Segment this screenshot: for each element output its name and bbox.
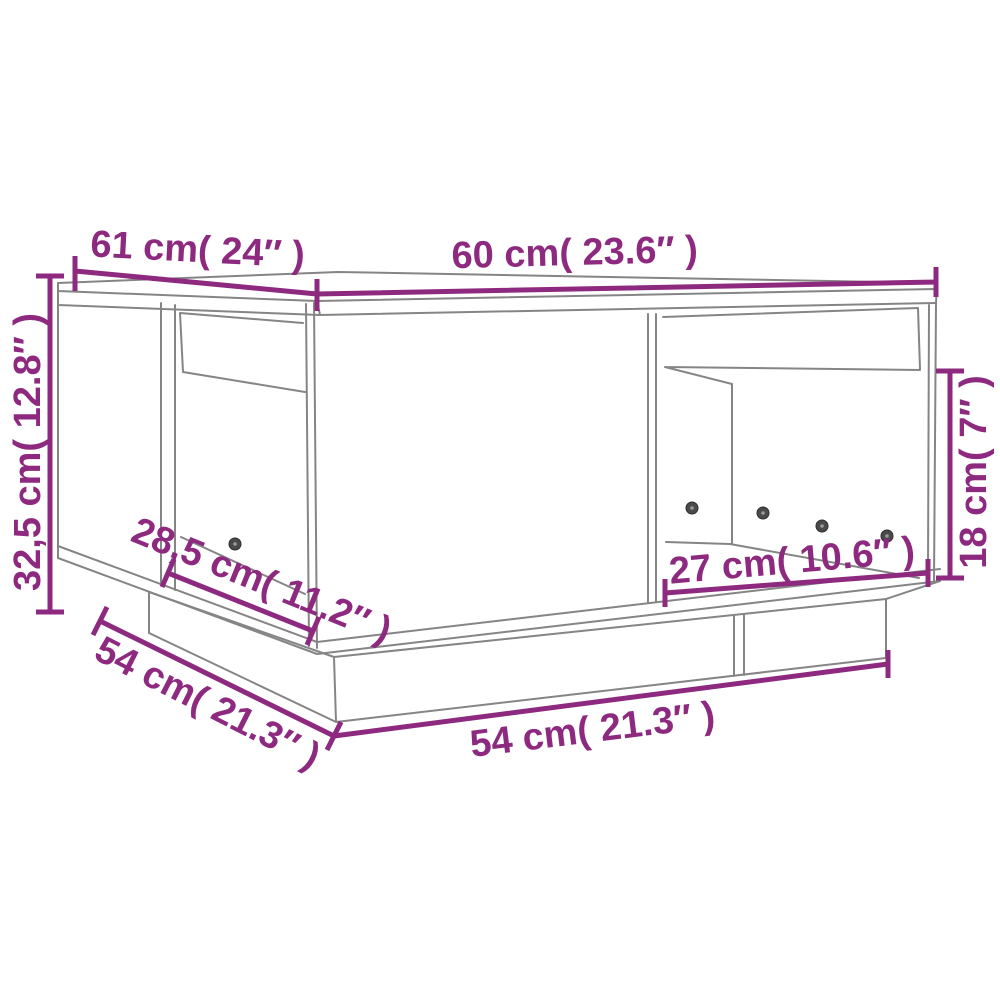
dimension-label-base-right-width: 54 cm( 21.3″ ) — [468, 694, 718, 766]
dimension-top-right-width: 60 cm( 23.6″ ) — [317, 229, 936, 297]
dimension-label-top-left-depth: 61 cm( 24″ ) — [89, 223, 306, 276]
dimension-label-right-opening-height: 18 cm( 7″ ) — [953, 375, 995, 569]
dimension-label-left-height: 32,5 cm( 12.8″ ) — [7, 313, 49, 591]
coffee-table-diagram-svg: 61 cm( 24″ ) 60 cm( 23.6″ ) 32,5 cm( 12.… — [0, 0, 1000, 1000]
cam-screw-icon — [686, 502, 698, 514]
dimension-left-height: 32,5 cm( 12.8″ ) — [7, 276, 64, 612]
dimension-annotations: 61 cm( 24″ ) 60 cm( 23.6″ ) 32,5 cm( 12.… — [7, 223, 995, 778]
dimension-label-base-left-depth: 54 cm( 21.3″ ) — [88, 629, 327, 778]
table-line-drawing — [58, 272, 940, 722]
dimension-diagram: 61 cm( 24″ ) 60 cm( 23.6″ ) 32,5 cm( 12.… — [0, 0, 1000, 1000]
tabletop — [58, 272, 937, 315]
dimension-label-top-right-width: 60 cm( 23.6″ ) — [451, 229, 698, 277]
cam-screw-icon — [816, 520, 828, 532]
dimension-top-left-depth: 61 cm( 24″ ) — [75, 223, 317, 311]
dimension-right-opening-width: 27 cm( 10.6″ ) — [665, 529, 928, 607]
cam-screw-icon — [757, 507, 769, 519]
dimension-base-left-depth: 54 cm( 21.3″ ) — [88, 607, 341, 778]
dimension-right-opening-height: 18 cm( 7″ ) — [936, 371, 995, 578]
